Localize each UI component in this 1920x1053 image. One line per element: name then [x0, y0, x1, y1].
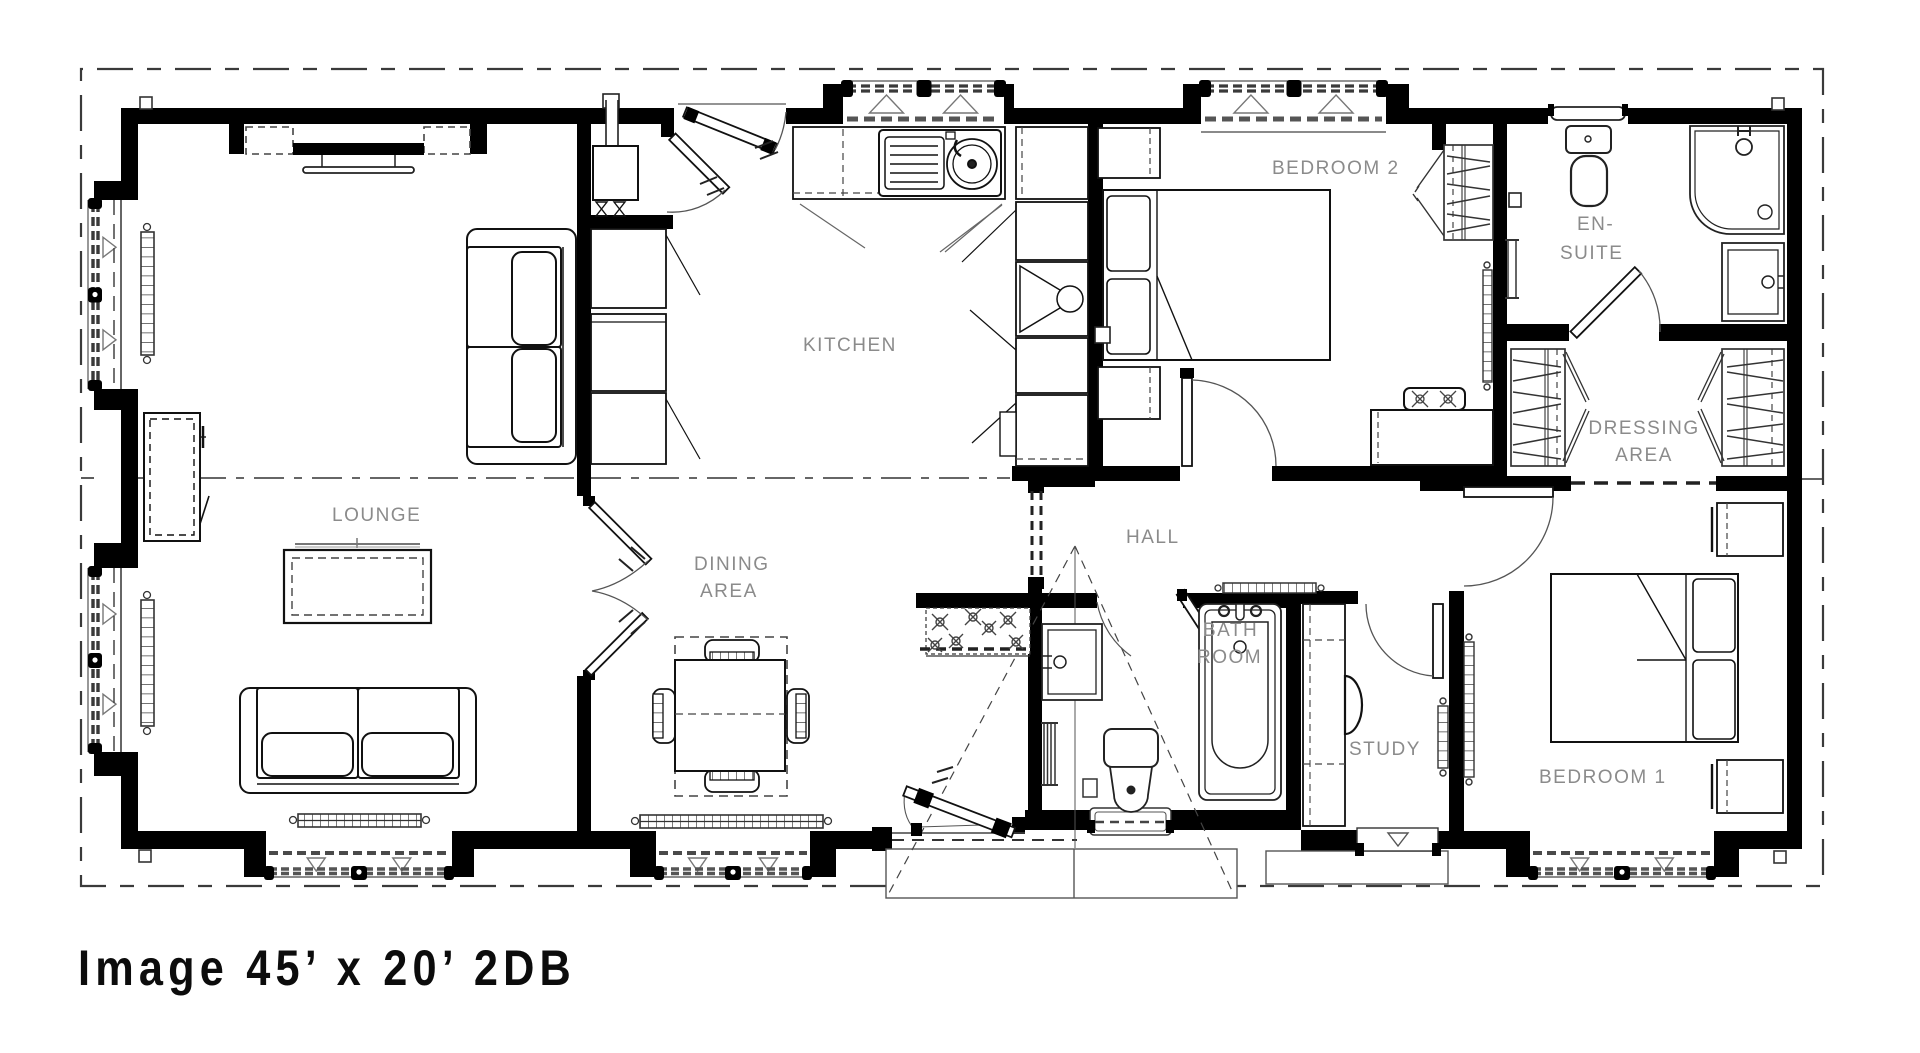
svg-text:BEDROOM 1: BEDROOM 1 — [1539, 767, 1667, 788]
svg-text:LOUNGE: LOUNGE — [332, 505, 421, 526]
svg-text:KITCHEN: KITCHEN — [803, 335, 897, 356]
svg-text:DINING: DINING — [694, 554, 770, 575]
svg-text:SUITE: SUITE — [1560, 243, 1623, 264]
svg-text:ROOM: ROOM — [1197, 647, 1262, 668]
svg-text:BEDROOM 2: BEDROOM 2 — [1272, 158, 1400, 179]
svg-text:DRESSING: DRESSING — [1588, 418, 1699, 439]
svg-text:AREA: AREA — [1615, 445, 1673, 466]
svg-text:BATH: BATH — [1203, 620, 1258, 641]
svg-text:HALL: HALL — [1126, 527, 1180, 548]
svg-text:AREA: AREA — [700, 581, 758, 602]
svg-text:STUDY: STUDY — [1349, 739, 1421, 760]
svg-text:EN-: EN- — [1577, 214, 1614, 235]
svg-text:Image 45’ x 20’ 2DB: Image 45’ x 20’ 2DB — [78, 940, 576, 996]
